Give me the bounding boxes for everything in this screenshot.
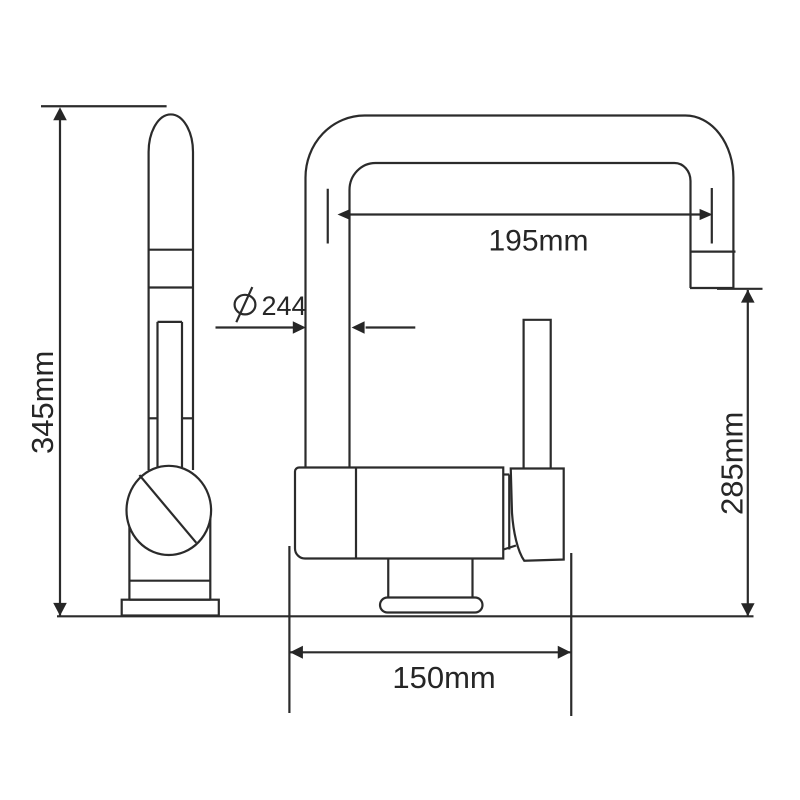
svg-text:345mm: 345mm [25,351,60,454]
svg-text:285mm: 285mm [714,412,749,515]
svg-text:150mm: 150mm [392,660,495,695]
svg-text:195mm: 195mm [489,225,589,258]
svg-text:244: 244 [262,291,307,321]
